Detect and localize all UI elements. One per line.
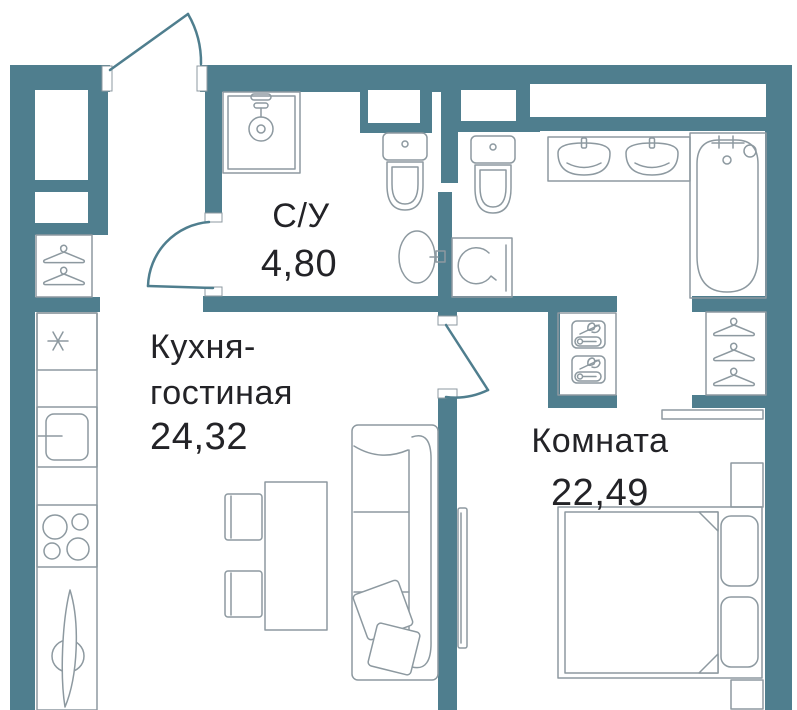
dining-set xyxy=(225,482,327,630)
blanket-fold xyxy=(699,654,718,673)
entry-door-icon xyxy=(110,14,201,70)
chair xyxy=(225,571,262,617)
entry-door-post-right xyxy=(197,66,207,91)
bathroom2-fixtures xyxy=(452,133,766,298)
duct-niche-a xyxy=(368,90,420,123)
bedroom-door-icon xyxy=(446,325,488,398)
vanity-double-sink-icon xyxy=(548,137,690,181)
bathroom-door-post-top xyxy=(205,213,222,222)
wall-closet-south xyxy=(692,395,767,408)
duct-niche-b xyxy=(461,90,516,121)
console-shelf xyxy=(662,410,763,419)
coat-hanger-icon xyxy=(44,267,85,284)
bathroom-area: 4,80 xyxy=(261,243,337,285)
chair xyxy=(225,494,262,540)
wall-towel-niche-south xyxy=(548,395,617,408)
kitchen-label-line2: гостиная xyxy=(150,374,293,412)
bathtub-icon xyxy=(690,133,766,298)
sofa-cushion-dividers xyxy=(354,512,409,592)
nightstand xyxy=(731,463,763,507)
entry-closet xyxy=(36,235,92,297)
wall-left-outer xyxy=(10,65,35,710)
wall-joint-notch xyxy=(441,183,450,192)
bedroom-wardrobe xyxy=(706,312,766,395)
coat-hanger-icon xyxy=(44,245,85,262)
bed-frame xyxy=(558,507,762,678)
toilet-icon xyxy=(383,133,427,210)
throw-pillow xyxy=(367,622,420,675)
wall-bedroom-divider xyxy=(438,398,457,710)
wall-bedroom-door-stub xyxy=(438,296,457,316)
bathroom-label: С/У xyxy=(272,197,329,235)
floor-plan-svg: С/У 4,80 Кухня- гостиная 24,32 Комната 2… xyxy=(0,0,797,710)
washing-machine-icon xyxy=(452,238,512,297)
bed xyxy=(558,507,762,678)
towel-icon xyxy=(572,321,605,348)
coat-hanger-icon xyxy=(714,318,755,335)
kitchen-area: 24,32 xyxy=(150,416,248,458)
wall-bath-south-west xyxy=(203,296,617,312)
tv-icon xyxy=(458,508,467,648)
cooktop-icon xyxy=(37,505,97,567)
towel-shelf xyxy=(558,313,616,395)
wall-kitchen-stub xyxy=(10,297,100,312)
bed-mattress xyxy=(565,512,718,673)
sofa xyxy=(352,425,438,680)
blanket-fold xyxy=(699,512,718,531)
bedroom-area: 22,49 xyxy=(551,472,649,514)
entry-shaft-niche-small xyxy=(35,192,88,223)
dining-table xyxy=(265,482,327,630)
wall-right-outer xyxy=(765,65,792,710)
wall-bath-divider-upper xyxy=(441,92,458,183)
coat-hanger-icon xyxy=(714,368,755,385)
sofa-armrest-top xyxy=(354,446,408,455)
nightstand xyxy=(731,680,763,709)
bed-pillow xyxy=(721,597,758,667)
bedroom-label: Комната xyxy=(531,422,668,460)
oven-icon xyxy=(37,407,97,467)
wall-bath-divider-lower xyxy=(438,192,452,296)
kitchen-label-line1: Кухня- xyxy=(150,328,256,366)
towel-icon xyxy=(572,356,605,383)
kitchen-sink-icon xyxy=(52,590,84,707)
shower-icon xyxy=(223,92,300,173)
bedroom-door-post-top xyxy=(438,316,457,325)
fridge-icon xyxy=(37,313,97,370)
wall-bathroom-west xyxy=(205,92,222,213)
entry-closet-box xyxy=(36,235,92,297)
kitchen-units xyxy=(37,313,97,710)
toilet2-icon xyxy=(471,136,515,213)
window-niche xyxy=(530,84,766,117)
floor-plan: С/У 4,80 Кухня- гостиная 24,32 Комната 2… xyxy=(0,0,797,710)
bathroom-door-icon xyxy=(148,222,213,288)
coat-hanger-icon xyxy=(714,343,755,360)
entry-shaft-niche xyxy=(35,90,88,180)
bed-pillow xyxy=(721,516,758,586)
